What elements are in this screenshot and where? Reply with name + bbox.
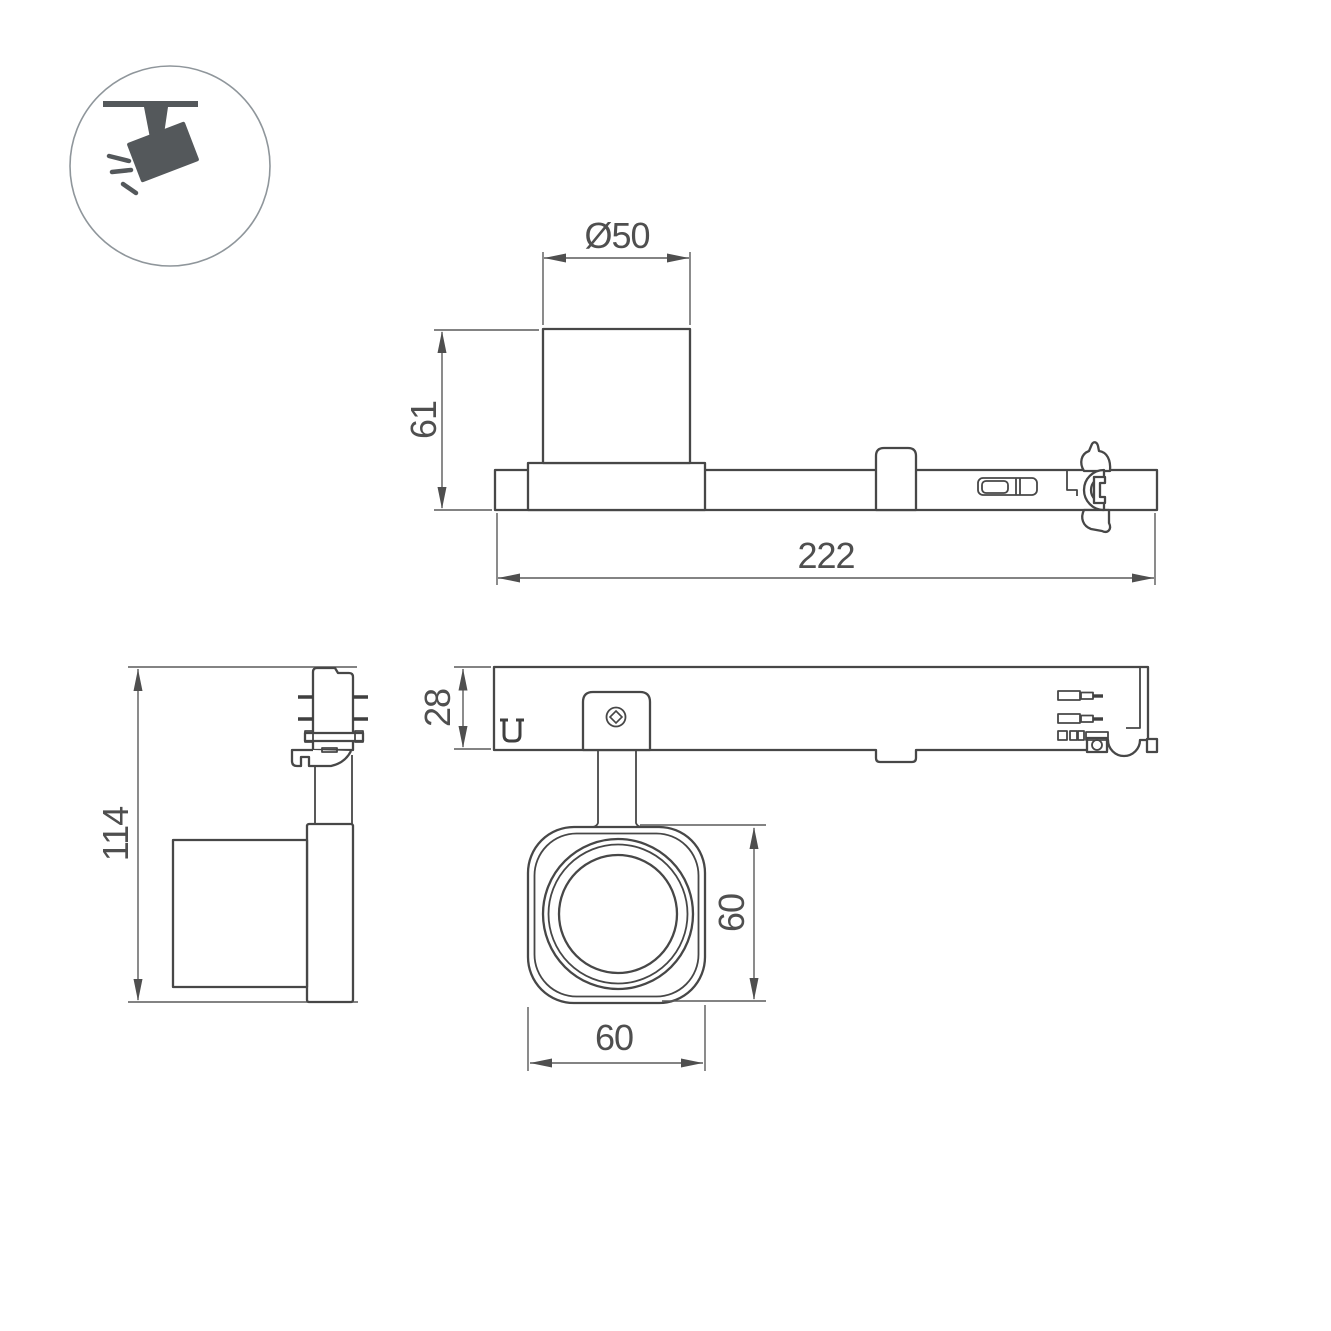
plan-view: 28: [417, 667, 1157, 827]
lamp-base: [528, 463, 705, 510]
dim-diameter-50: Ø50: [543, 215, 690, 325]
technical-drawing-page: Ø50 61 222: [0, 0, 1331, 1331]
mounting-plate: [583, 692, 650, 750]
dim-label-114: 114: [95, 807, 136, 861]
dim-length-222: 222: [497, 513, 1155, 585]
lamp-cylinder: [543, 329, 690, 463]
stem: [593, 750, 641, 827]
head-body: [307, 824, 353, 1002]
lens-housing: [173, 840, 307, 987]
dim-front-width-60: 60: [528, 1005, 705, 1071]
side-elevation-view: Ø50 61 222: [403, 215, 1157, 585]
head-squircle: [528, 827, 705, 1003]
dim-label-diameter: Ø50: [584, 215, 649, 256]
product-icon-badge: [70, 66, 270, 266]
dim-label-60v: 60: [711, 894, 752, 932]
dim-label-222: 222: [797, 535, 854, 576]
end-tab: [1147, 739, 1157, 752]
dim-label-28: 28: [417, 689, 458, 727]
side-profile-view: 114: [95, 667, 368, 1002]
dim-label-61: 61: [403, 401, 444, 439]
drawing-sheet: Ø50 61 222: [0, 0, 1331, 1331]
front-lens-view: 60 60: [528, 825, 766, 1071]
dim-label-60h: 60: [595, 1017, 633, 1058]
dim-height-28: 28: [417, 667, 491, 749]
fixing-clip: [876, 448, 916, 510]
